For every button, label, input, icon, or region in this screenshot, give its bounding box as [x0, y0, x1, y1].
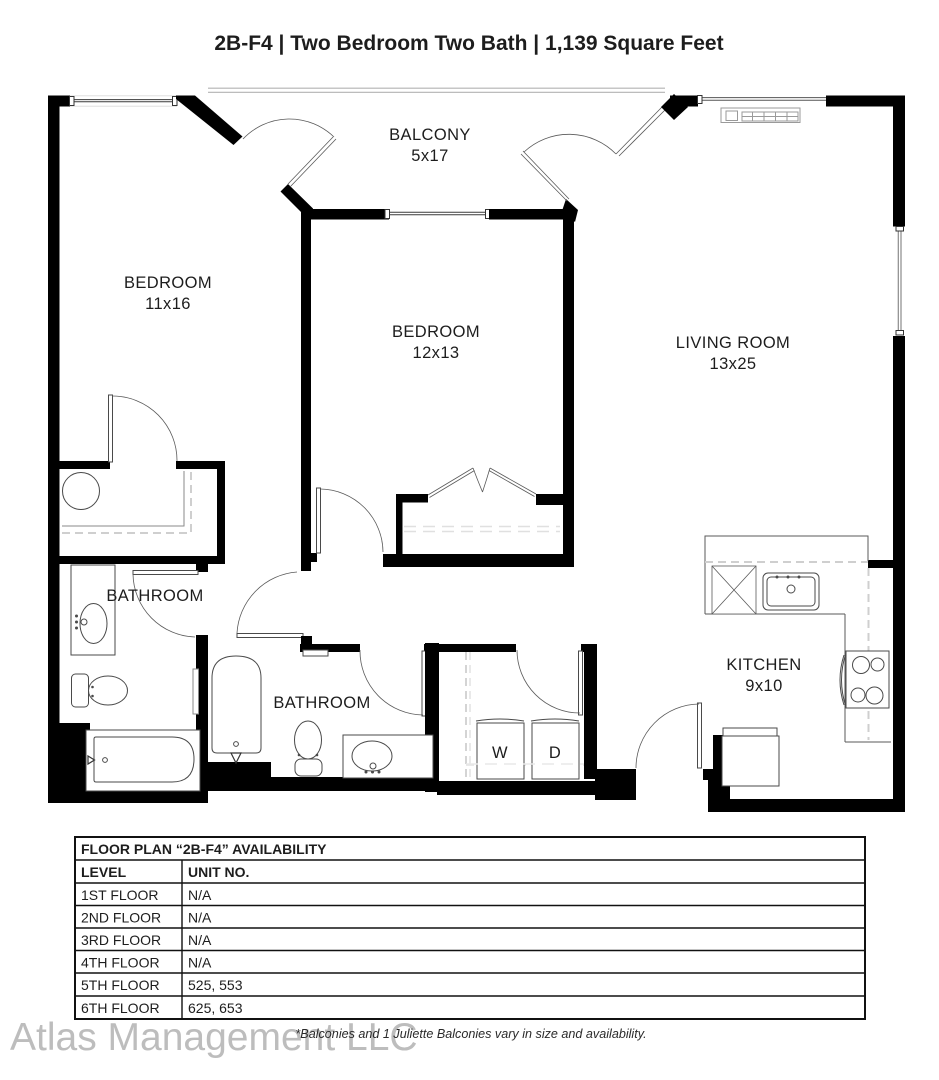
- svg-text:625, 653: 625, 653: [188, 1000, 243, 1016]
- svg-text:6TH FLOOR: 6TH FLOOR: [81, 1000, 160, 1016]
- svg-text:BATHROOM: BATHROOM: [273, 694, 370, 712]
- svg-text:N/A: N/A: [188, 932, 212, 948]
- svg-text:BEDROOM: BEDROOM: [392, 323, 480, 341]
- svg-text:12x13: 12x13: [413, 344, 460, 362]
- svg-text:UNIT NO.: UNIT NO.: [188, 864, 249, 880]
- svg-text:2B-F4 | Two Bedroom Two Bath |: 2B-F4 | Two Bedroom Two Bath | 1,139 Squ…: [214, 32, 723, 55]
- svg-text:2ND FLOOR: 2ND FLOOR: [81, 910, 161, 926]
- svg-text:N/A: N/A: [188, 955, 212, 971]
- svg-text:BALCONY: BALCONY: [389, 126, 471, 144]
- svg-text:N/A: N/A: [188, 887, 212, 903]
- svg-text:LEVEL: LEVEL: [81, 864, 127, 880]
- svg-text:5x17: 5x17: [411, 147, 448, 165]
- svg-text:9x10: 9x10: [745, 677, 782, 695]
- svg-text:BEDROOM: BEDROOM: [124, 274, 212, 292]
- svg-text:D: D: [549, 744, 561, 762]
- svg-text:13x25: 13x25: [710, 355, 757, 373]
- svg-text:1ST FLOOR: 1ST FLOOR: [81, 887, 159, 903]
- svg-text:525, 553: 525, 553: [188, 977, 243, 993]
- svg-text:FLOOR PLAN “2B-F4” AVAILABILIT: FLOOR PLAN “2B-F4” AVAILABILITY: [81, 841, 327, 857]
- svg-text:N/A: N/A: [188, 910, 212, 926]
- svg-text:LIVING ROOM: LIVING ROOM: [676, 334, 790, 352]
- svg-text:KITCHEN: KITCHEN: [726, 656, 801, 674]
- svg-text:3RD FLOOR: 3RD FLOOR: [81, 932, 161, 948]
- svg-text:11x16: 11x16: [145, 295, 191, 313]
- svg-text:4TH FLOOR: 4TH FLOOR: [81, 955, 160, 971]
- svg-text:5TH FLOOR: 5TH FLOOR: [81, 977, 160, 993]
- svg-text:*Balconies and 1 Juliette Balc: *Balconies and 1 Juliette Balconies vary…: [295, 1027, 646, 1041]
- svg-text:BATHROOM: BATHROOM: [106, 587, 203, 605]
- svg-text:W: W: [492, 744, 508, 762]
